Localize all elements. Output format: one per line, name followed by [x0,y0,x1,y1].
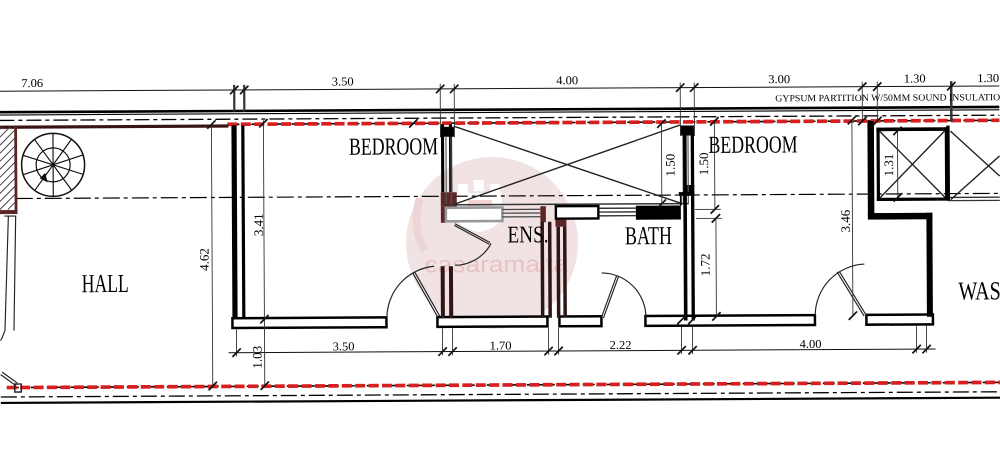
svg-text:2.22: 2.22 [610,338,632,352]
svg-text:1.70: 1.70 [490,338,512,352]
svg-text:3.50: 3.50 [333,339,355,353]
svg-text:1.31: 1.31 [881,154,896,177]
svg-text:1.50: 1.50 [663,154,678,177]
svg-text:4.62: 4.62 [197,248,212,271]
svg-text:3.00: 3.00 [768,72,790,86]
svg-text:WASH: WASH [958,276,1000,305]
svg-text:4.00: 4.00 [556,73,578,87]
svg-text:1.30: 1.30 [977,71,999,85]
svg-text:HALL: HALL [82,269,129,298]
svg-text:ENS.: ENS. [507,222,548,248]
svg-text:4.00: 4.00 [800,337,822,351]
svg-text:3.50: 3.50 [332,74,354,88]
svg-text:1.03: 1.03 [250,346,265,369]
svg-text:1.72: 1.72 [698,254,713,277]
svg-text:3.46: 3.46 [838,209,853,232]
svg-text:3.41: 3.41 [251,213,266,236]
svg-text:casaramalta: casaramalta [425,251,568,278]
svg-text:BEDROOM: BEDROOM [708,131,797,158]
svg-text:BEDROOM: BEDROOM [349,133,438,160]
svg-text:1.30: 1.30 [904,71,926,85]
svg-text:GYPSUM PARTITION W/50MM SOUND: GYPSUM PARTITION W/50MM SOUND INSULATION [775,93,1000,104]
svg-text:7.06: 7.06 [21,76,43,90]
svg-text:BATH: BATH [625,221,672,250]
